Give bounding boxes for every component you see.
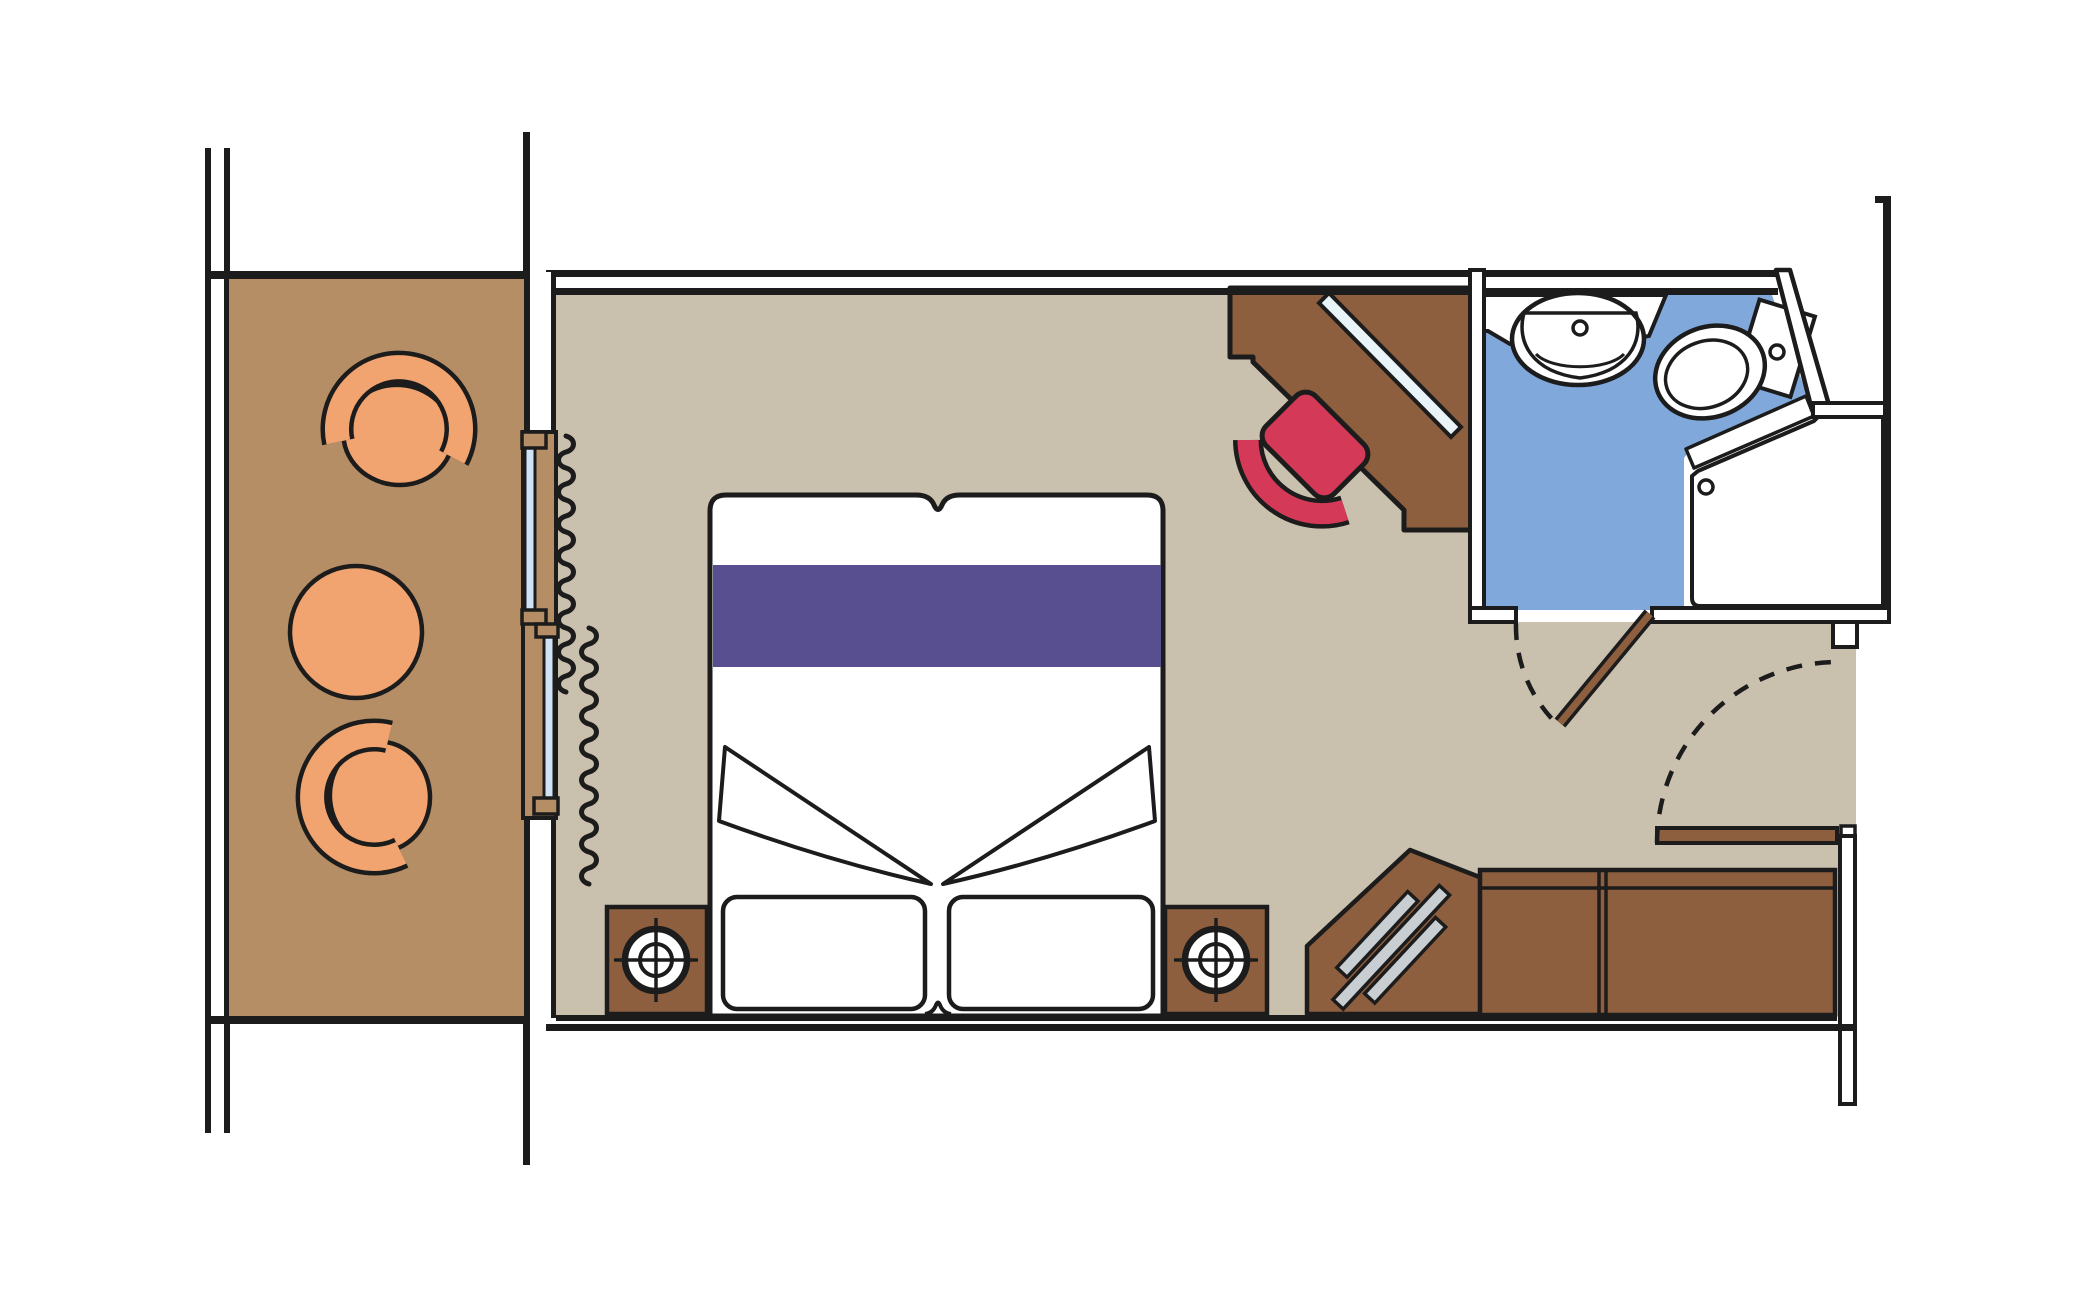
balcony-sliding-window — [522, 432, 558, 818]
partition-wall-lower-edge — [551, 818, 556, 1018]
top-wall-outer-line — [546, 270, 1790, 277]
bathroom-bottom-wall-right — [1652, 608, 1889, 622]
hull-line-outer — [205, 148, 211, 1133]
bathroom-bottom-wall-left-jamb — [1470, 608, 1516, 622]
nightstand-right — [1165, 907, 1267, 1014]
partition-wall-upper — [530, 272, 551, 432]
window-glass-pane-outer — [525, 446, 535, 612]
partition-wall-upper-edge — [551, 272, 556, 432]
wardrobe — [1480, 870, 1835, 1015]
bed-runner — [713, 565, 1161, 667]
corridor-wall — [1883, 196, 1891, 612]
balcony-top-wall-line — [205, 271, 530, 279]
pillow-right — [949, 897, 1153, 1009]
sink-drain-icon — [1573, 321, 1587, 335]
right-wall-lower — [1840, 836, 1855, 1104]
pillow-left — [723, 897, 925, 1009]
double-bed — [710, 495, 1163, 1016]
nightstand-left — [607, 907, 707, 1014]
doorway-threshold — [1837, 647, 1856, 828]
sink — [1512, 293, 1644, 385]
window-frame-block-bottom — [534, 798, 558, 814]
top-wall-inner-line — [551, 288, 1778, 295]
bottom-wall-outer-line — [546, 1024, 1857, 1031]
window-glass-pane-inner — [544, 636, 554, 800]
balcony-round-table — [290, 566, 422, 698]
bathroom-right-joint-wall — [1813, 403, 1889, 417]
shower-drain-icon — [1699, 480, 1713, 494]
entrance-door-leaf — [1657, 828, 1837, 843]
bathroom-left-wall — [1470, 270, 1484, 622]
sink-rim — [1512, 293, 1644, 385]
wardrobe-body — [1480, 870, 1835, 1015]
corridor-wall-tick — [1875, 196, 1885, 203]
toilet-flush-icon — [1770, 345, 1784, 359]
window-frame-block-top — [522, 432, 546, 448]
window-frame-block-mid1 — [522, 610, 546, 624]
balcony-bottom-wall-line — [205, 1016, 530, 1024]
bottom-wall-inner-line — [556, 1015, 1837, 1021]
floorplan-canvas — [0, 0, 2100, 1299]
doorway-top-jamb — [1833, 622, 1857, 647]
cabin-floorplan — [0, 0, 2100, 1299]
window-frame-block-mid2 — [536, 624, 558, 637]
partition-wall-lower — [530, 818, 551, 1024]
